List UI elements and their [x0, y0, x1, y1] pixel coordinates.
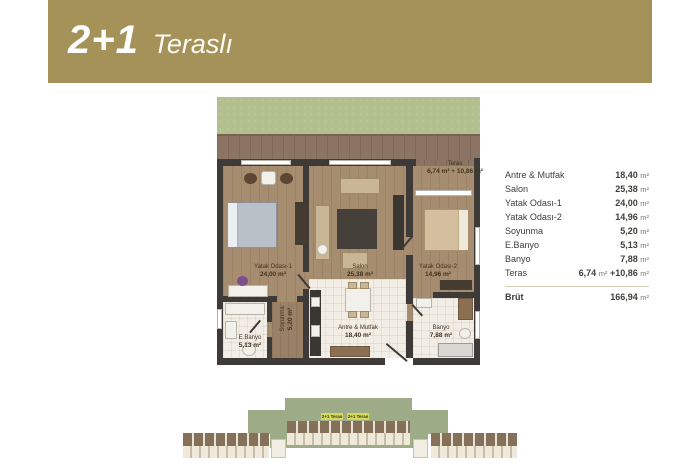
- label-salon: Salon 25,38 m²: [347, 264, 373, 278]
- keyplan-stair-core: [413, 439, 428, 458]
- keyplan-stair-core: [271, 439, 286, 458]
- building-key-plan: 2+1 Teras 2+1 Teras: [175, 393, 525, 461]
- window-salon: [329, 160, 391, 165]
- wall-bottom-right: [413, 358, 480, 365]
- wall-bottom-left: [217, 358, 385, 365]
- desk: [228, 285, 268, 297]
- wall-salon-yatak2-lower: [406, 255, 413, 304]
- wall-antre-banyo: [406, 321, 413, 358]
- label-banyo: Banyo 7,88 m²: [430, 325, 452, 339]
- wardrobe-yatak2: [440, 280, 472, 290]
- bed2-pillows: [458, 210, 468, 250]
- garden-grass: [217, 97, 480, 134]
- wall-ebanyo-soyunma-lower: [267, 337, 272, 358]
- table-row: E.Banyo 5,13 m²: [505, 240, 649, 254]
- window-yatak1: [241, 160, 291, 165]
- sink-ebanyo: [225, 321, 237, 339]
- keyplan-unit-row: [183, 433, 269, 446]
- keyplan-unit-row: [431, 433, 517, 446]
- desk-chair: [237, 276, 248, 286]
- stove: [311, 325, 320, 337]
- page: 2+1 Teraslı: [0, 0, 700, 466]
- table-row: Antre & Mutfak 18,40 m²: [505, 170, 649, 184]
- terrace-door-sill: [415, 190, 472, 196]
- keyplan-unit-row: [287, 421, 410, 433]
- area-table: Antre & Mutfak 18,40 m² Salon 25,38 m² Y…: [505, 170, 649, 306]
- wardrobe-yatak1: [295, 202, 308, 245]
- keyplan-unit-row: [287, 433, 410, 445]
- window-banyo: [475, 311, 480, 339]
- label-yatak2: Yatak Odası-2 14,96 m²: [419, 264, 457, 278]
- wall-salon-yatak2-upper: [406, 166, 413, 237]
- table-row: Yatak Odası-1 24,00 m²: [505, 198, 649, 212]
- plan-variant-label: Teraslı: [153, 29, 233, 60]
- bathtub-banyo: [438, 343, 473, 357]
- wall-ebanyo-soyunma-upper: [267, 302, 272, 322]
- floor-plan: Teras 6,74 m² + 10,86 m² Yatak Odası-1 2…: [217, 97, 480, 390]
- tv-unit: [393, 195, 404, 250]
- label-soyunma: Soyunma 5,20 m²: [280, 306, 294, 331]
- side-table: [261, 171, 276, 185]
- dining-chair: [348, 311, 357, 318]
- keyplan-highlight-chip: 2+1 Teras: [321, 413, 343, 420]
- sink-kitchen: [311, 297, 320, 307]
- dining-chair: [348, 282, 357, 289]
- table-row: Soyunma 5,20 m²: [505, 226, 649, 240]
- window-ebanyo: [217, 309, 222, 329]
- terrace-deck-strip: [217, 134, 480, 160]
- keyplan-units-center: [287, 421, 410, 445]
- bathtub-ebanyo: [225, 303, 265, 315]
- keyplan-highlight-chip: 2+1 Teras: [347, 413, 369, 420]
- table-row: Yatak Odası-2 14,96 m²: [505, 212, 649, 226]
- deck-edge: [217, 134, 480, 136]
- dining-chair: [360, 311, 369, 318]
- dining-chair: [360, 282, 369, 289]
- sofa-top: [340, 178, 380, 194]
- table-row: Banyo 7,88 m²: [505, 254, 649, 268]
- plan-title: 2+1 Teraslı: [68, 18, 233, 63]
- armchair: [244, 173, 257, 184]
- keyplan-units-left-wing: [183, 433, 269, 458]
- bath-cabinet: [458, 298, 473, 320]
- window-yatak2: [475, 227, 480, 265]
- dining-table: [345, 288, 371, 312]
- keyplan-units-right-wing: [431, 433, 517, 458]
- bed-pillows: [228, 203, 238, 247]
- plan-type-label: 2+1: [68, 18, 139, 63]
- armchair: [280, 173, 293, 184]
- sink-banyo: [416, 298, 432, 308]
- title-banner: 2+1 Teraslı: [48, 0, 652, 83]
- table-row: Salon 25,38 m²: [505, 184, 649, 198]
- toilet-banyo: [459, 328, 471, 339]
- keyplan-unit-row: [431, 446, 517, 458]
- label-yatak1: Yatak Odası-1 24,00 m²: [254, 264, 292, 278]
- label-teras: Teras 6,74 m² + 10,86 m²: [427, 161, 483, 175]
- entry-bench: [330, 346, 370, 357]
- label-antre: Antre & Mutfak 18,40 m²: [338, 325, 378, 339]
- table-total-row: Brüt 166,94 m²: [505, 286, 649, 306]
- keyplan-unit-row: [183, 446, 269, 458]
- table-row: Teras 6,74 m² +10,86 m²: [505, 268, 649, 282]
- wall-yatak1-soyunma: [297, 296, 309, 302]
- floor-fan: [317, 244, 328, 255]
- coffee-table-rug: [337, 209, 377, 249]
- label-ebanyo: E.Banyo 5,13 m²: [239, 335, 262, 349]
